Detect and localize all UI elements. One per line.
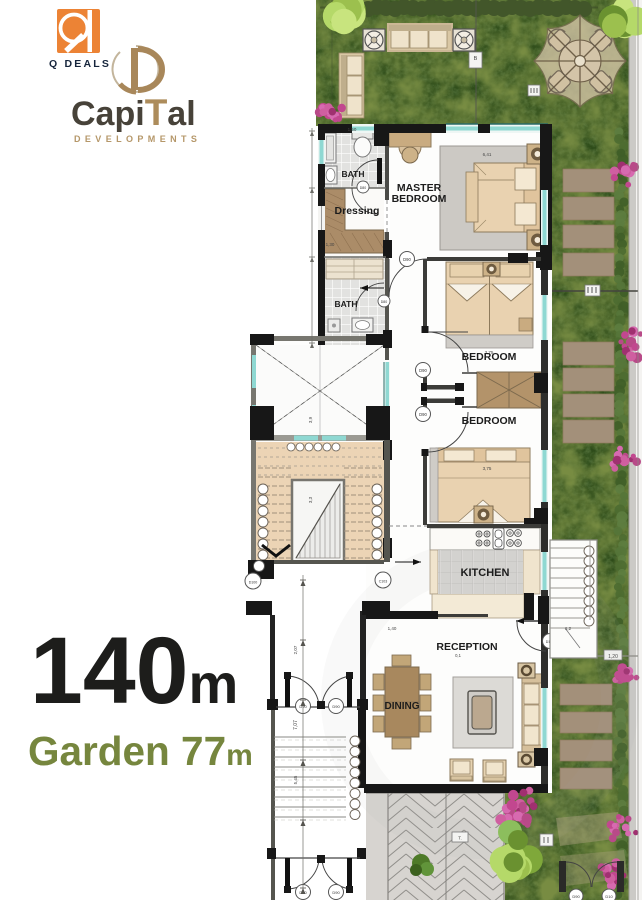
svg-text:D80: D80 [381,300,387,304]
svg-text:BEDROOM: BEDROOM [392,193,447,205]
svg-text:2,07: 2,07 [293,645,298,654]
svg-text:C103: C103 [379,580,388,584]
svg-text:CapiTal: CapiTal [71,92,196,133]
svg-text:1,30: 1,30 [326,242,335,247]
svg-text:D90: D90 [332,890,340,895]
svg-text:Q DEALS: Q DEALS [49,58,111,70]
svg-text:1,40: 1,40 [388,626,397,631]
svg-text:D80: D80 [360,186,366,190]
svg-text:3,9: 3,9 [308,416,313,423]
svg-text:1,50: 1,50 [348,127,357,132]
svg-text:3,75: 3,75 [483,466,492,471]
svg-text:0,1: 0,1 [455,653,461,658]
svg-text:BEDROOM: BEDROOM [462,415,517,427]
svg-text:D90: D90 [419,368,427,373]
svg-text:3,3: 3,3 [308,496,313,503]
svg-text:T.: T. [458,836,462,841]
svg-text:D90: D90 [332,704,340,709]
svg-text:1,2: 1,2 [565,626,572,631]
svg-text:5,45: 5,45 [293,775,298,784]
svg-text:BATH: BATH [342,169,365,179]
svg-text:7,07: 7,07 [293,720,299,730]
svg-text:D100: D100 [249,581,258,585]
svg-text:Garden 77m: Garden 77m [28,728,253,774]
svg-text:Dressing: Dressing [335,205,380,217]
svg-text:DEVELOPMENTS: DEVELOPMENTS [74,134,201,144]
svg-text:DINING: DINING [385,701,420,712]
svg-text:D90: D90 [419,412,427,417]
svg-text:RECEPTION: RECEPTION [436,641,497,653]
svg-text:BEDROOM: BEDROOM [462,351,517,363]
svg-text:KITCHEN: KITCHEN [461,567,510,579]
svg-text:B: B [474,56,478,62]
svg-text:D90: D90 [403,257,411,262]
svg-text:BATH: BATH [335,299,358,309]
svg-text:D10: D10 [605,894,613,899]
svg-text:6,41: 6,41 [483,152,492,157]
svg-text:D90: D90 [572,894,580,899]
